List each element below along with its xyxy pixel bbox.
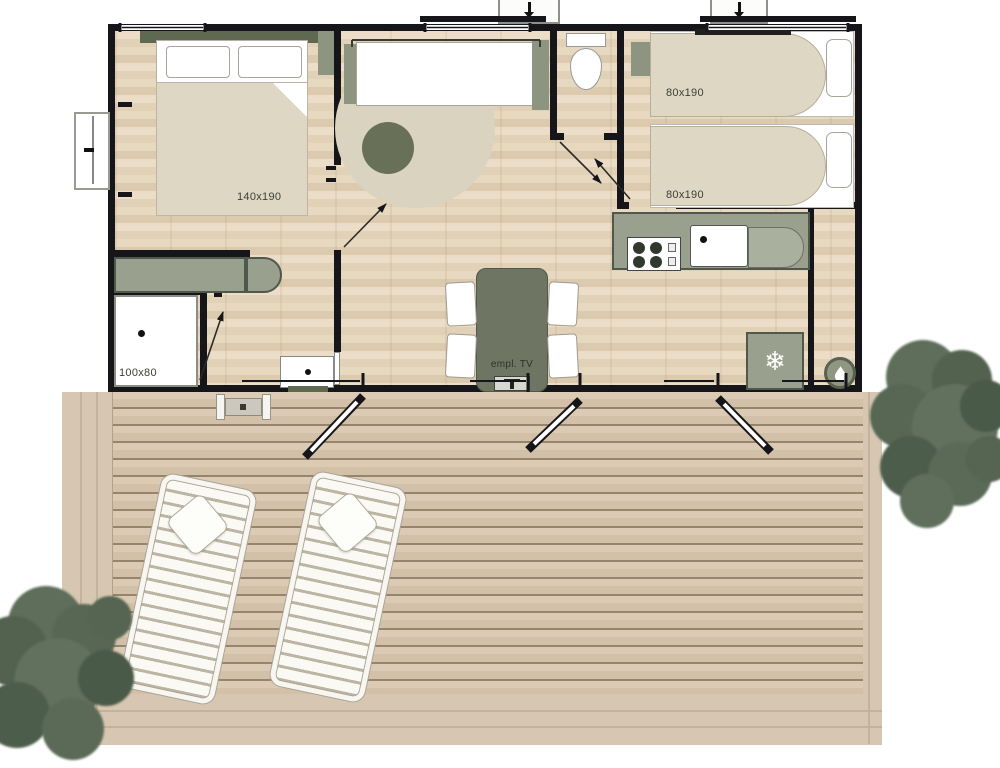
bed-pillow [826,132,852,188]
burner-icon [650,256,662,268]
wall-bedroom2-left [617,31,624,209]
tree-icon [0,586,162,768]
counter-end [748,227,804,268]
wall-hall-living [334,250,341,352]
bed-size-label: 80x190 [666,88,704,99]
tv-spot-label: empl. TV [478,360,546,370]
burner-icon [633,242,645,254]
step-post [216,394,225,420]
bedside-shelf [318,31,334,75]
basin-cabinet [288,386,328,392]
chair [445,281,477,327]
hall-door [334,352,340,385]
wall-wc-left [550,31,557,140]
bed-size-label: 140x190 [237,192,281,203]
roof-vent [498,0,560,24]
hinge-tick [326,166,336,170]
snowflake-icon: ❄ [764,346,786,377]
stove [627,237,681,271]
floor-plan: 140x190 100x80 empl. TV 80x190 80x190 [0,0,1000,768]
bed-pillow [826,39,852,97]
bed-cover [156,82,308,216]
hinge-tick [326,178,336,182]
sofa [356,42,534,106]
wall-wc-bottom [550,133,564,140]
rug-accent-circle [362,122,414,174]
toilet-tank [566,33,606,47]
sink-faucet [700,236,707,243]
stove-control [668,243,676,252]
shower-size-label: 100x80 [119,368,157,379]
vent-arrow-icon [734,12,744,18]
dining-table [476,268,548,392]
bed-size-label: 80x190 [666,190,704,201]
shower-drain [138,330,145,337]
window [74,112,110,190]
washbasin [280,356,334,388]
fridge: ❄ [746,332,804,390]
lounger-pillow [165,492,230,557]
chair [547,281,579,327]
water-heater [824,357,856,389]
burner-icon [650,242,662,254]
wall-shower-side [200,288,207,392]
basin-faucet [305,369,311,375]
sofa-armrest [344,44,356,104]
lounger-pillow [315,490,380,555]
wall-bedroom-bath [108,250,250,257]
wardrobe-leg [214,293,222,297]
side-cabinet [532,40,549,110]
tree-icon [870,340,1000,532]
stove-control [668,257,676,266]
wall-wc-bottom [604,133,624,140]
bed-pillow [238,46,302,78]
headboard-bar [695,29,791,35]
deck-edge-line [62,726,882,728]
window-handle [84,148,94,152]
tv-unit [494,376,530,391]
burner-icon [633,256,645,268]
wall-kitchen [617,202,629,209]
vent-arrow-icon [524,12,534,18]
roof-vent [710,0,768,24]
tv-icon [510,379,514,389]
bed-pillow [166,46,230,78]
step-post [262,394,271,420]
cover-fold [273,83,307,117]
chair [547,333,579,379]
bed-cover [650,33,826,117]
wardrobe [114,257,246,293]
kitchen-sink [690,225,748,267]
wall-tick [118,192,132,197]
deck-edge-line [62,710,882,712]
water-drop-icon [834,365,847,382]
chair [445,333,477,379]
wardrobe-end [246,257,282,293]
wall-tick [118,102,132,107]
step-mark [240,404,246,410]
